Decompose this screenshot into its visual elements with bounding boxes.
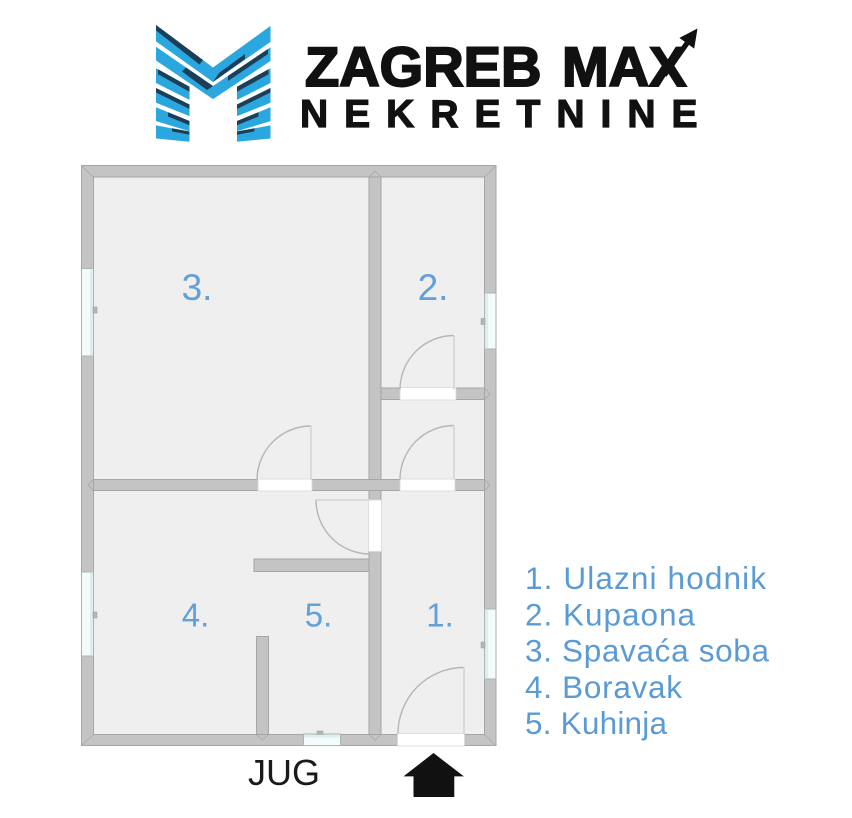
svg-text:3. Spavaća soba: 3. Spavaća soba	[525, 633, 769, 669]
svg-text:5.: 5.	[305, 597, 333, 634]
svg-text:1. Ulazni hodnik: 1. Ulazni hodnik	[525, 560, 766, 596]
svg-text:2. Kupaona: 2. Kupaona	[525, 596, 695, 632]
svg-text:5. Kuhinja: 5. Kuhinja	[525, 705, 667, 741]
svg-text:4. Boravak: 4. Boravak	[525, 669, 682, 705]
svg-text:ZAGREB MAX: ZAGREB MAX	[305, 35, 686, 98]
svg-text:3.: 3.	[182, 267, 213, 308]
svg-text:1.: 1.	[426, 597, 454, 634]
svg-text:2.: 2.	[418, 267, 449, 308]
svg-text:NEKRETNINE: NEKRETNINE	[300, 93, 714, 136]
svg-text:4.: 4.	[182, 597, 210, 634]
svg-text:JUG: JUG	[248, 752, 320, 793]
